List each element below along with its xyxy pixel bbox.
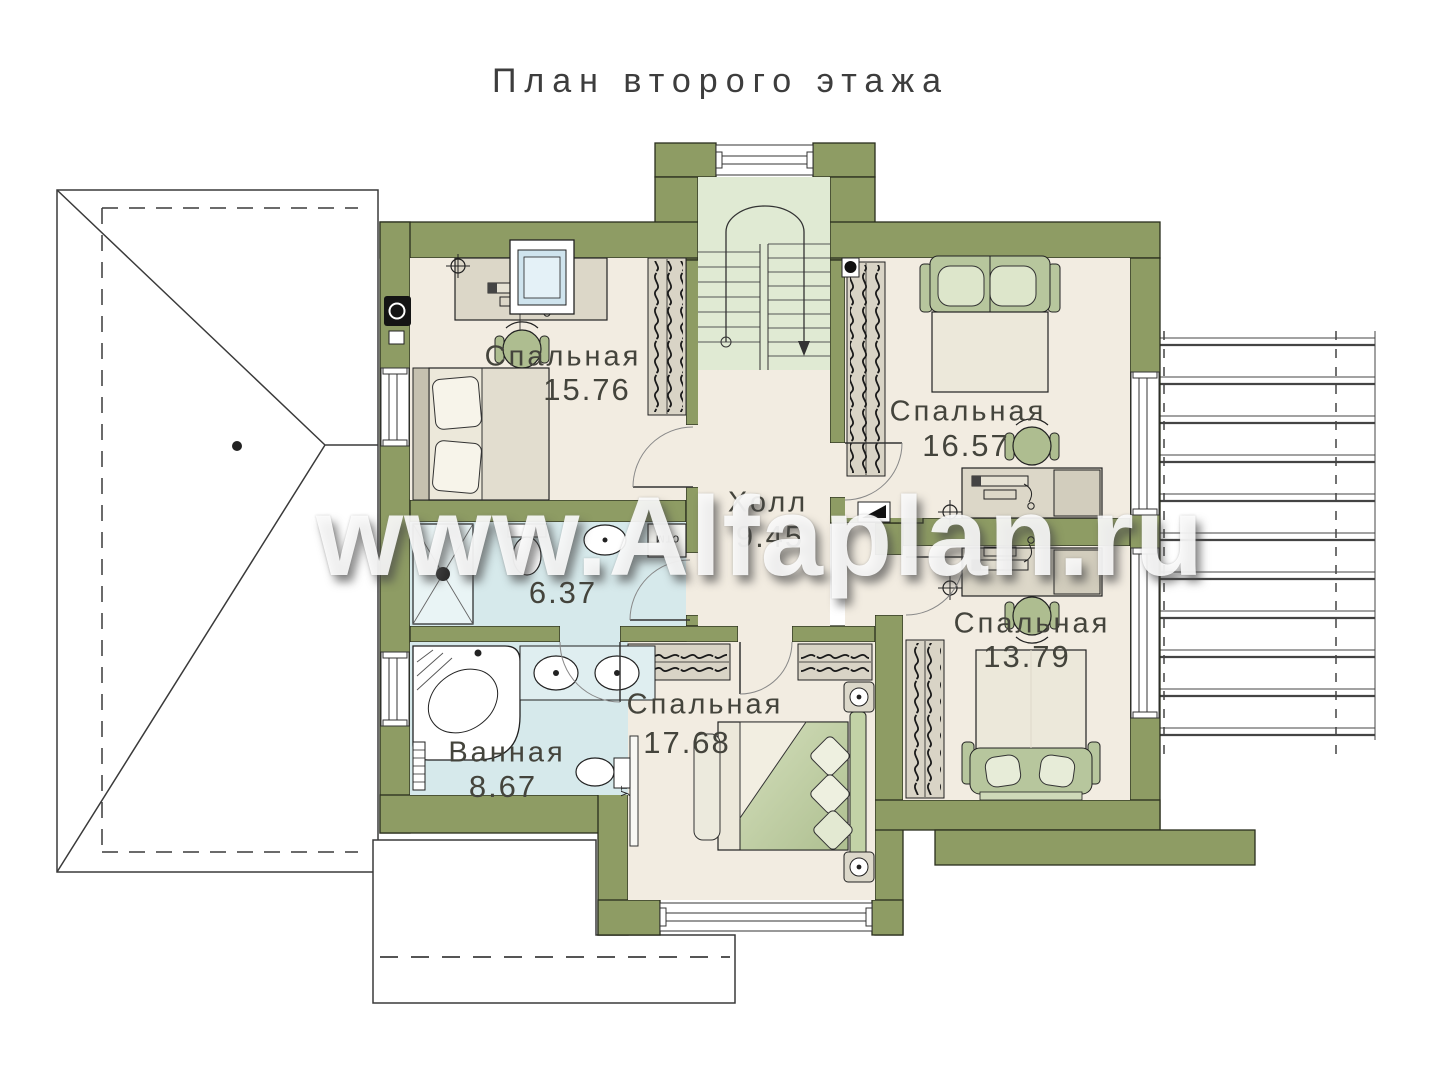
room-label-bedroom-4-name: Спальная [954,608,1111,641]
window-bay [510,240,574,314]
room-label-bathroom-area: 8.67 [469,769,537,805]
floor-plan-page: План второго этажа Спальная 15.76 Спальн… [0,0,1441,1080]
wardrobe [648,258,686,415]
wardrobe [798,644,872,680]
window-bedroom-3-bottom [660,903,872,931]
room-label-bedroom-1-name: Спальная [485,341,642,374]
tv-panel [630,736,638,846]
bed-double [718,712,866,860]
room-label-bedroom-3-name: Спальная [627,689,784,722]
vent-box [842,258,859,277]
tv-label: ут [618,786,630,797]
window-stair-top [716,145,813,175]
room-label-bedroom-1-area: 15.76 [543,372,631,408]
wardrobe [847,262,885,476]
window-bathroom-left [381,652,409,726]
room-label-bedroom-3-area: 17.68 [643,725,731,761]
room-label-bedroom-4-area: 13.79 [983,639,1071,675]
nightstand-speaker [844,682,874,712]
room-label-bathroom-name: Ванная [448,737,565,770]
toilet [576,758,630,788]
watermark: www.Alfaplan.ru [316,472,1204,601]
bed-double [920,256,1060,392]
radiator [413,742,425,790]
nightstand-speaker [844,852,874,882]
roof-apex-dot [232,441,242,451]
room-label-bedroom-2-name: Спальная [890,396,1047,429]
room-label-bedroom-2-area: 16.57 [922,428,1010,464]
plan-title: План второго этажа [0,62,1441,101]
window-bedroom-1-left [381,368,409,446]
wardrobe [906,640,944,798]
